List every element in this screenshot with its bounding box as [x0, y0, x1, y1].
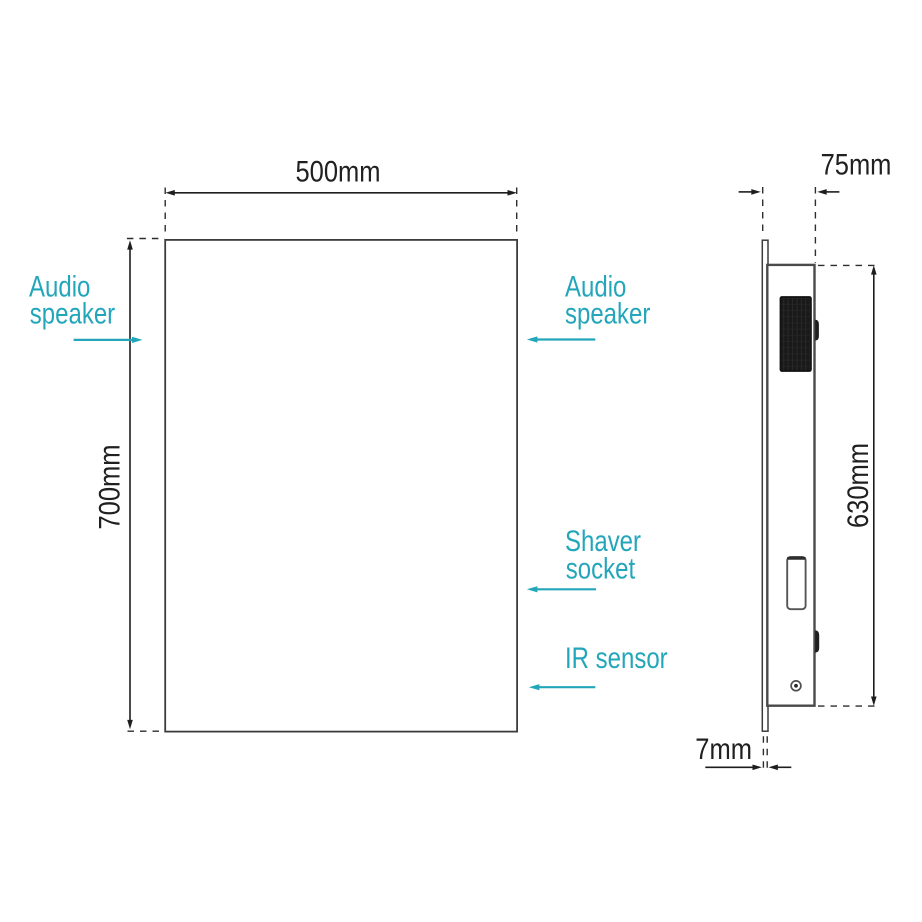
- svg-text:speaker: speaker: [565, 296, 650, 330]
- svg-text:socket: socket: [566, 551, 636, 585]
- svg-text:speaker: speaker: [30, 296, 115, 330]
- svg-text:75mm: 75mm: [821, 148, 892, 181]
- svg-text:630mm: 630mm: [841, 443, 874, 528]
- svg-text:7mm: 7mm: [695, 732, 752, 765]
- svg-text:700mm: 700mm: [93, 445, 126, 530]
- svg-text:500mm: 500mm: [296, 155, 381, 188]
- svg-text:IR sensor: IR sensor: [565, 641, 668, 675]
